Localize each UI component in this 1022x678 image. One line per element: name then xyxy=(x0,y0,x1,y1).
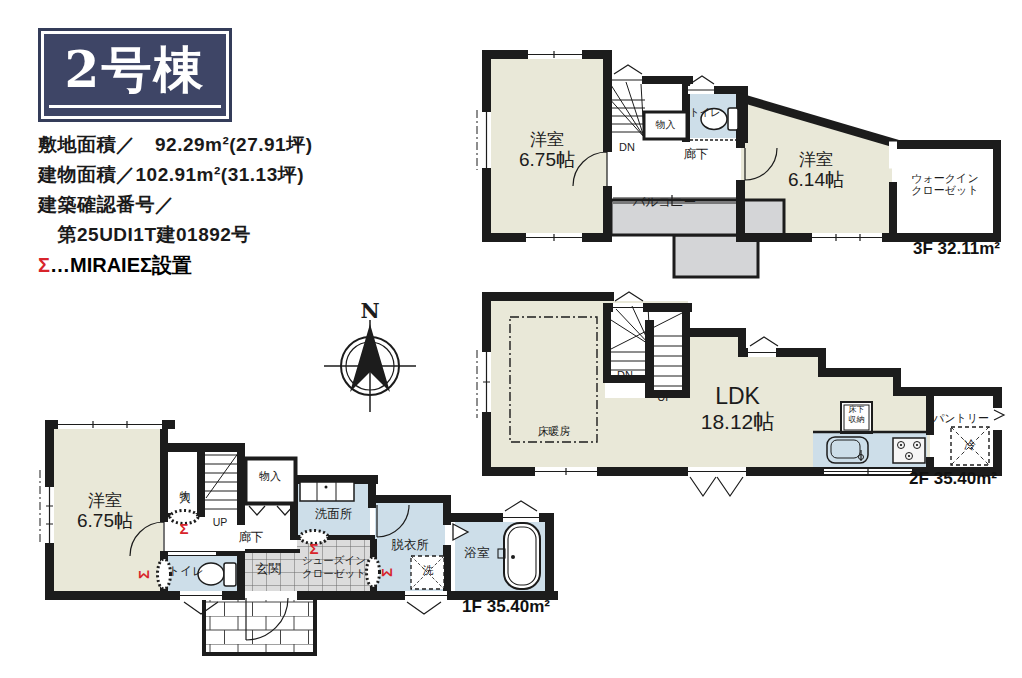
building-title: 2号棟 xyxy=(65,37,206,104)
f3-hallway-label: 廊下 xyxy=(664,147,728,161)
f1-sigma-damper-1: Σ xyxy=(170,521,198,538)
f1-sigma-damper-3: Σ xyxy=(134,566,156,583)
f3-storage-label: 物入 xyxy=(644,119,687,130)
f3-wic-label: ウォークイン クローゼット xyxy=(897,172,993,197)
floor1-plan xyxy=(40,420,558,656)
permit-number-line: 第25UDI1T建01892号 xyxy=(38,222,251,248)
f1-sigma-damper-4: Σ xyxy=(377,564,399,581)
f3-toilet-label: トイレ xyxy=(687,107,723,119)
f1-toilet-label: トイレ xyxy=(164,565,208,578)
building-title-block: 2号棟 xyxy=(38,28,232,122)
f1-washroom-label: 洗面所 xyxy=(297,507,370,521)
f3-stair-dn-label: DN xyxy=(610,141,644,153)
permit-label-line: 建築確認番号／ xyxy=(38,192,175,218)
f2-pantry-label: パントリー xyxy=(924,412,998,424)
f1-stair-up-label: UP xyxy=(200,517,240,529)
f2-stair-dn-label: DN xyxy=(607,369,643,381)
f2-ldk-label: LDK 18.12帖 xyxy=(655,384,820,433)
f1-porch xyxy=(206,600,313,652)
sigma-icon: Σ xyxy=(38,254,50,276)
f1-hallway-label: 廊下 xyxy=(222,530,280,544)
f1-area-label: 1F 35.40m² xyxy=(405,597,550,616)
f1-sigma-damper-2: Σ xyxy=(300,541,328,558)
f1-dressing-room-label: 脱衣所 xyxy=(375,538,445,552)
f2-floor-heating-label: 床暖房 xyxy=(510,425,598,437)
mirai-legend: Σ…MIRAIEΣ設置 xyxy=(38,252,192,279)
f2-area-label: 2F 35.40m² xyxy=(850,469,997,488)
f1-storage2-label: 物入 xyxy=(245,470,295,482)
f1-bedroom-label: 洋室 6.75帖 xyxy=(48,491,162,531)
f3-area-label: 3F 32.11m² xyxy=(855,239,1000,258)
building-area-line: 建物面積／102.91m²(31.13坪) xyxy=(38,162,304,188)
f1-storage1-label: 物入 xyxy=(173,460,191,506)
compass-rose xyxy=(324,320,416,412)
f1-entrance-label: 玄関 xyxy=(240,562,297,577)
f3-balcony-label: バルコニー xyxy=(607,195,722,209)
f3-bedroom1-label: 洋室 6.75帖 xyxy=(485,130,609,170)
f3-bedroom2-label: 洋室 6.14帖 xyxy=(742,150,890,190)
floorplan-page: 2号棟 敷地面積／ 92.29m²(27.91坪) 建物面積／102.91m²(… xyxy=(0,0,1022,678)
title-rule xyxy=(49,105,221,108)
f1-bathroom-label: 浴室 xyxy=(452,546,502,560)
f2-underfloor-storage-label: 床下 収納 xyxy=(841,405,872,424)
legend-text: …MIRAIEΣ設置 xyxy=(50,254,192,276)
site-area-line: 敷地面積／ 92.29m²(27.91坪) xyxy=(38,132,312,158)
f2-fridge-label: 冷 xyxy=(957,439,983,452)
f1-laundry-label: 洗 xyxy=(415,564,441,576)
f1-shoe-closet-label: シューズイン クローゼット xyxy=(293,554,375,580)
compass-north-label: N xyxy=(355,299,385,323)
